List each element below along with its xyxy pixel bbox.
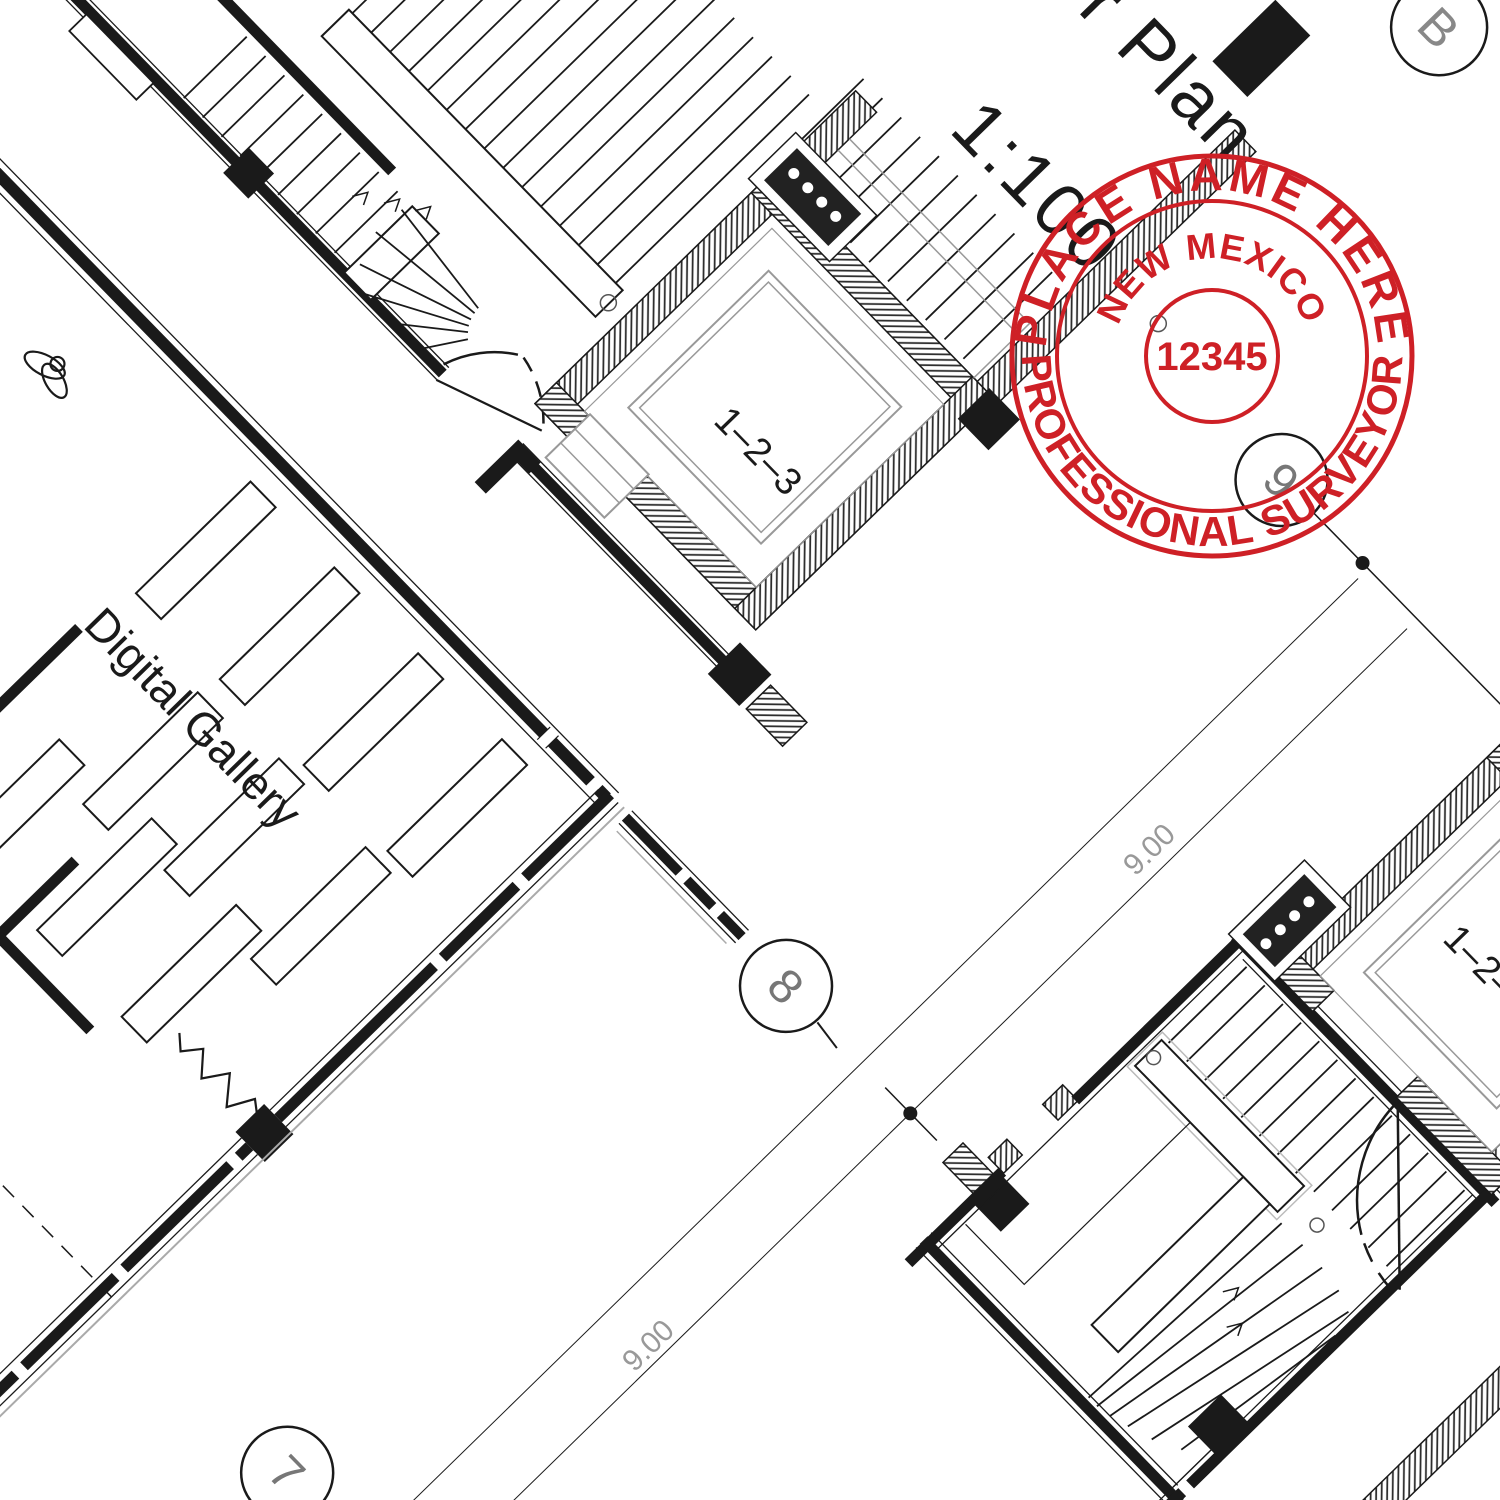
svg-text:12345: 12345 <box>1156 335 1267 379</box>
